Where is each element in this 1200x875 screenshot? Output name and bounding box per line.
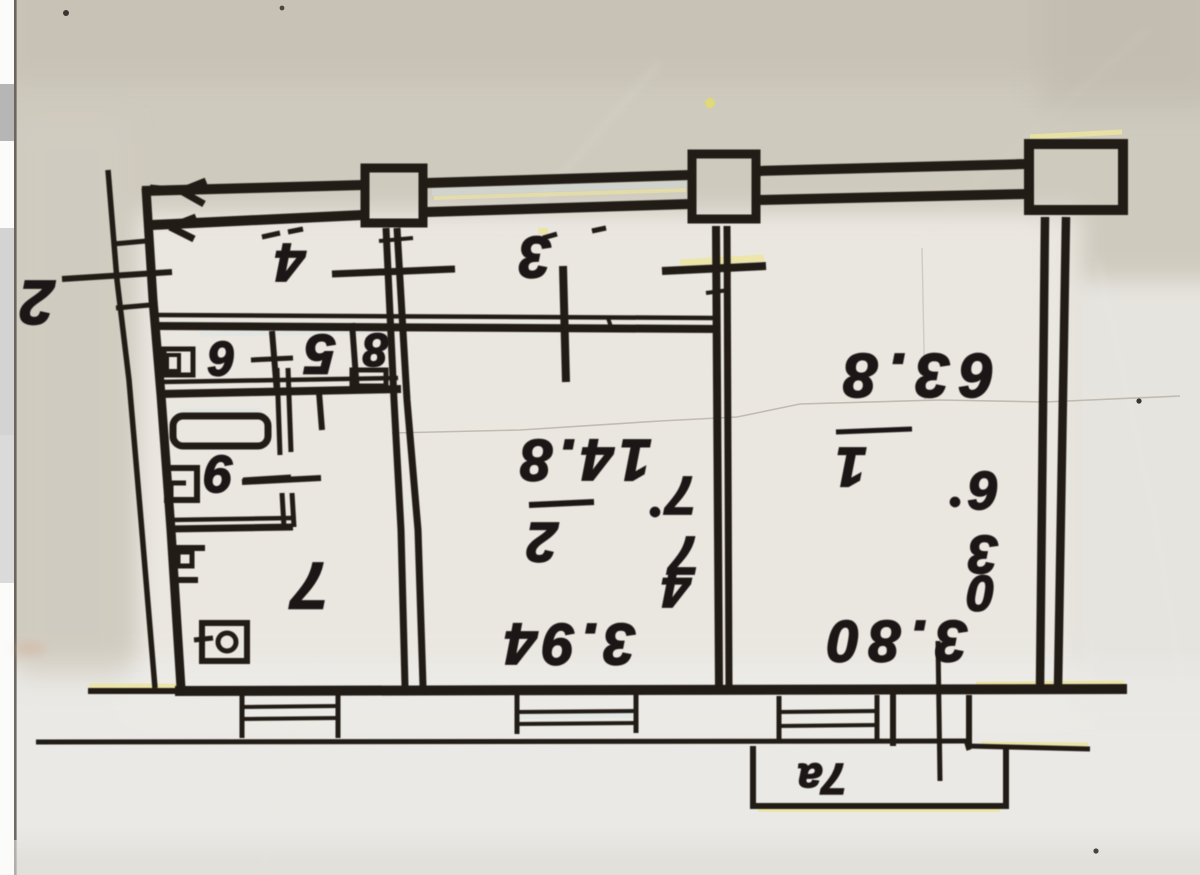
svg-text:7: 7	[288, 549, 328, 623]
svg-text:8: 8	[363, 324, 389, 376]
svg-text:3.94: 3.94	[499, 611, 636, 676]
svg-text:3.80: 3.80	[819, 608, 968, 673]
svg-text:63.8: 63.8	[834, 340, 995, 409]
svg-text:2: 2	[526, 511, 558, 574]
svg-text:4: 4	[661, 559, 691, 617]
svg-text:6: 6	[968, 460, 999, 520]
svg-text:6: 6	[208, 331, 235, 384]
svg-text:4: 4	[275, 232, 306, 292]
svg-text:0: 0	[967, 565, 995, 621]
svg-text:1: 1	[835, 436, 866, 499]
svg-text:3: 3	[519, 224, 551, 289]
svg-text:9: 9	[204, 444, 233, 502]
svg-text:5: 5	[304, 323, 336, 386]
svg-text:14.8: 14.8	[515, 427, 652, 492]
svg-text:7a: 7a	[798, 754, 847, 803]
svg-text:2: 2	[20, 267, 55, 336]
svg-text:7: 7	[663, 465, 696, 525]
